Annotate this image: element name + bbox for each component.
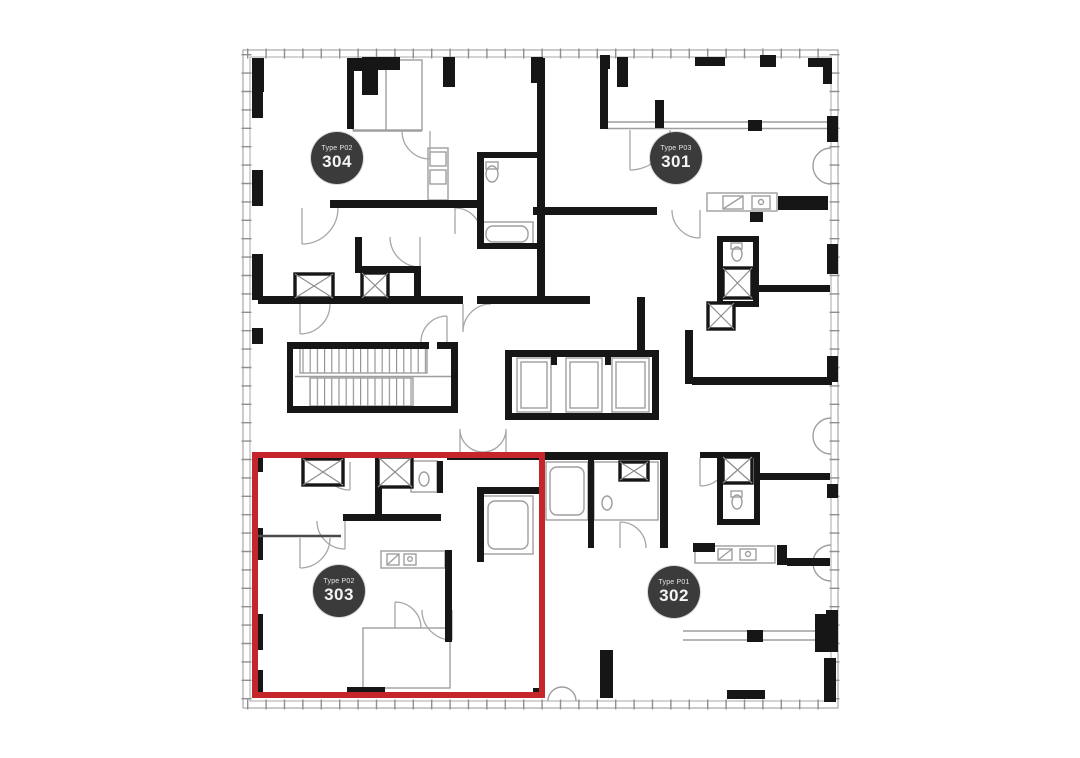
floor-plan-drawing	[0, 0, 1080, 758]
unit-type-label: Type P01	[658, 579, 689, 586]
floor-plan-canvas: Type P02 304 Type P03 301 Type P02 303 T…	[0, 0, 1080, 758]
unit-type-label: Type P03	[660, 145, 691, 152]
unit-number: 302	[659, 587, 689, 605]
unit-badge-302[interactable]: Type P01 302	[648, 566, 700, 618]
unit-badge-301[interactable]: Type P03 301	[650, 132, 702, 184]
unit-type-label: Type P02	[323, 578, 354, 585]
unit-badge-304[interactable]: Type P02 304	[311, 132, 363, 184]
unit-number: 301	[661, 153, 691, 171]
unit-badge-303[interactable]: Type P02 303	[313, 565, 365, 617]
unit-number: 304	[322, 153, 352, 171]
unit-type-label: Type P02	[321, 145, 352, 152]
unit-number: 303	[324, 586, 354, 604]
